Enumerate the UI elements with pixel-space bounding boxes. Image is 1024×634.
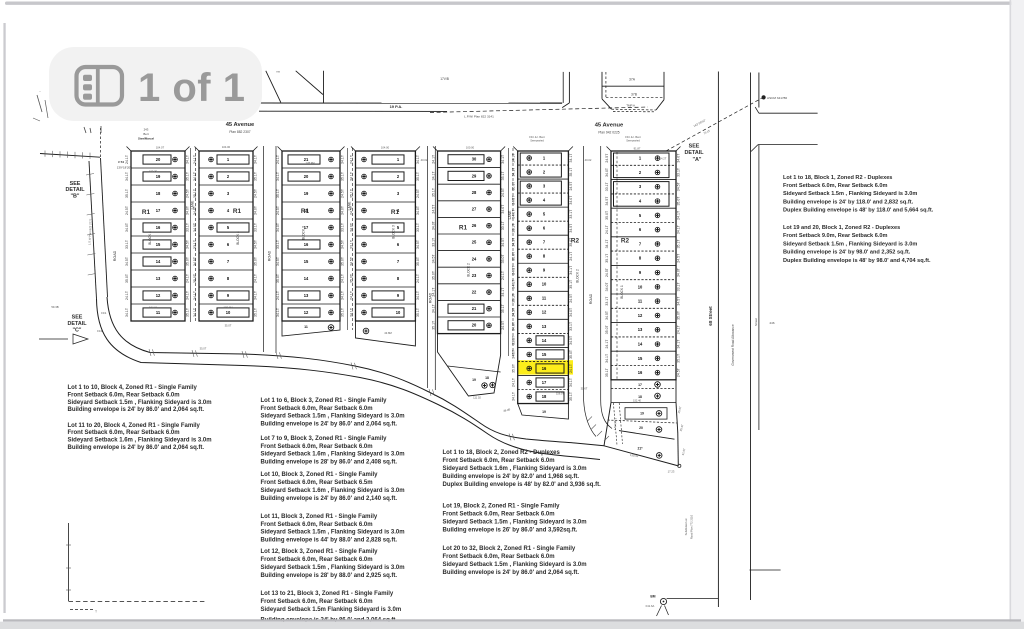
svg-text:Sideyard Setback 1.6m , Flanki: Sideyard Setback 1.6m , Flanking Sideyar…: [443, 466, 587, 472]
svg-text:11: 11: [156, 310, 161, 315]
svg-text:24.5T: 24.5T: [605, 153, 609, 163]
svg-text:34.1T: 34.1T: [185, 290, 189, 300]
svg-text:Duplex Building envelope is 48: Duplex Building envelope is 48' by 82.0'…: [443, 482, 602, 488]
svg-text:35.0T: 35.0T: [193, 273, 197, 283]
svg-text:24.1T: 24.1T: [512, 153, 516, 163]
svg-text:BLOCK 1: BLOCK 1: [620, 285, 624, 299]
svg-text:24.1T: 24.1T: [431, 154, 435, 164]
svg-text:ASCM 341786: ASCM 341786: [767, 96, 787, 100]
svg-text:35.0T: 35.0T: [431, 270, 435, 280]
svg-text:35.0T: 35.0T: [676, 196, 680, 206]
svg-text:11: 11: [638, 299, 643, 304]
svg-text:15: 15: [542, 352, 547, 357]
svg-text:35.1T: 35.1T: [416, 171, 420, 181]
svg-text:34.1T: 34.1T: [512, 279, 516, 289]
svg-text:24.5T: 24.5T: [676, 253, 680, 263]
svg-text:34.1T: 34.1T: [276, 171, 280, 181]
svg-text:34.0T: 34.0T: [512, 321, 516, 331]
svg-text:20: 20: [639, 426, 643, 430]
svg-text:35.1T: 35.1T: [416, 307, 420, 317]
svg-text:35.1T: 35.1T: [185, 307, 189, 317]
svg-text:34.1T: 34.1T: [676, 339, 680, 349]
svg-text:24.1T: 24.1T: [676, 324, 680, 334]
svg-text:246: 246: [769, 321, 774, 325]
svg-text:37B: 37B: [631, 93, 638, 97]
svg-text:LANE: LANE: [348, 201, 352, 211]
svg-text:34.5T: 34.5T: [569, 335, 573, 345]
svg-text:34.1T: 34.1T: [276, 307, 280, 317]
svg-text:SteelMarcel: SteelMarcel: [138, 137, 154, 141]
svg-text:Building envelope is 24' by 82: Building envelope is 24' by 82.0' and 1,…: [443, 474, 580, 480]
svg-text:# 54: # 54: [118, 160, 124, 164]
svg-text:35.1T: 35.1T: [501, 303, 505, 313]
svg-text:Sideyard Setback 1.5m , Flanki: Sideyard Setback 1.5m , Flanking Sideyar…: [443, 519, 587, 525]
svg-text:104.00: 104.00: [381, 146, 390, 150]
svg-text:BLOCK 2: BLOCK 2: [576, 269, 580, 283]
svg-text:Sideyard Setback 1.5m Flankin: Sideyard Setback 1.5m Flanking Sideyard …: [261, 607, 402, 613]
svg-text:34.0T: 34.0T: [501, 204, 505, 214]
svg-text:35.0T: 35.0T: [225, 324, 232, 328]
svg-text:Front Setback 6.0m, Rear Setba: Front Setback 6.0m, Rear Setback 6.0m: [261, 557, 373, 563]
svg-text:24.5T: 24.5T: [501, 320, 505, 330]
svg-text:34.1T: 34.1T: [349, 307, 353, 317]
svg-text:ROAD: ROAD: [268, 250, 272, 261]
svg-text:16: 16: [638, 370, 643, 375]
svg-text:24.1T: 24.1T: [276, 290, 280, 300]
svg-text:24.5T: 24.5T: [125, 205, 129, 215]
svg-text:24.1T: 24.1T: [193, 290, 197, 300]
svg-text:F43.: F43.: [101, 311, 107, 315]
svg-text:24.5T: 24.5T: [501, 187, 505, 197]
svg-text:24.1T: 24.1T: [605, 224, 609, 234]
svg-text:34.0T: 34.0T: [193, 222, 197, 232]
svg-text:Road Plan 772 2110: Road Plan 772 2110: [690, 514, 694, 539]
svg-text:Sideyard Setback 1.5m , Flanki: Sideyard Setback 1.5m , Flanking Sideyar…: [68, 400, 212, 406]
svg-text:34.5T: 34.5T: [431, 254, 435, 264]
svg-text:Street: Street: [754, 318, 758, 326]
svg-text:34.1T: 34.1T: [125, 171, 129, 181]
svg-text:Building envelope is 24' by 86: Building envelope is 24' by 86.0' and 2,…: [443, 570, 580, 576]
svg-text:24.5T: 24.5T: [253, 188, 257, 198]
svg-text:DETAIL: DETAIL: [684, 150, 704, 156]
svg-text:24.1T: 24.1T: [569, 363, 573, 373]
svg-text:10: 10: [396, 310, 401, 315]
svg-text:LANE: LANE: [508, 210, 512, 220]
svg-text:20: 20: [156, 157, 161, 162]
svg-text:35.1T: 35.1T: [276, 188, 280, 198]
svg-text:1 of 1: 1 of 1: [138, 66, 245, 110]
svg-text:24.5T: 24.5T: [512, 307, 516, 317]
svg-text:24.1T: 24.1T: [676, 210, 680, 220]
svg-text:19: 19: [304, 191, 309, 196]
svg-text:34.1T: 34.1T: [569, 377, 573, 387]
svg-text:34.5T: 34.5T: [676, 181, 680, 191]
svg-text:34.0T: 34.0T: [431, 220, 435, 230]
svg-text:34.1T: 34.1T: [185, 154, 189, 164]
svg-text:14: 14: [542, 338, 547, 343]
svg-text:104.0T: 104.0T: [156, 146, 165, 150]
svg-text:24.1T: 24.1T: [349, 290, 353, 300]
svg-text:91.87: 91.87: [634, 147, 641, 151]
svg-text:Front Setback 6.0m, Rear Setba: Front Setback 6.0m, Rear Setback 6.0m: [261, 444, 373, 450]
svg-text:34.1T: 34.1T: [193, 171, 197, 181]
svg-text:152.40: 152.40: [633, 399, 641, 403]
svg-text:34.1T: 34.1T: [416, 154, 420, 164]
svg-text:Lot 1 to 18, Block 2, Zoned R2: Lot 1 to 18, Block 2, Zoned R2 - Duplexe…: [443, 450, 561, 456]
svg-text:Front Setback 6.0m, Rear Setba: Front Setback 6.0m, Rear Setback 6.0m: [443, 511, 555, 517]
svg-text:19: 19: [472, 378, 476, 382]
svg-text:Plan 942 0225: Plan 942 0225: [598, 131, 619, 135]
svg-text:14: 14: [156, 259, 161, 264]
svg-text:34.5T: 34.5T: [193, 256, 197, 266]
svg-text:"B": "B": [70, 193, 79, 199]
svg-text:34.1T: 34.1T: [416, 290, 420, 300]
svg-text:35.1T: 35.1T: [512, 293, 516, 303]
svg-text:34.1T: 34.1T: [193, 307, 197, 317]
svg-text:35.1T: 35.1T: [340, 307, 344, 317]
svg-text:34.5T: 34.5T: [605, 310, 609, 320]
svg-text:24.5T: 24.5T: [276, 205, 280, 215]
svg-text:34.1T: 34.1T: [431, 171, 435, 181]
svg-text:13: 13: [156, 276, 161, 281]
svg-text:34.0T: 34.0T: [605, 282, 609, 292]
svg-text:34.0T: 34.0T: [605, 167, 609, 177]
svg-text:17: 17: [156, 208, 161, 213]
svg-text:~: ~: [39, 89, 41, 93]
svg-text:34.5T: 34.5T: [676, 296, 680, 306]
svg-text:33.1T: 33.1T: [431, 237, 435, 247]
svg-text:35.1T: 35.1T: [253, 307, 257, 317]
svg-text:35.1T: 35.1T: [185, 171, 189, 181]
svg-text:33.1T: 33.1T: [569, 321, 573, 331]
svg-text:R2: R2: [571, 238, 580, 245]
svg-text:33.1T: 33.1T: [253, 222, 257, 232]
svg-text:35.0T: 35.0T: [340, 256, 344, 266]
svg-text:Duplex Building envelope is 48: Duplex Building envelope is 48' by 98.0'…: [783, 258, 931, 264]
svg-text:34.0T: 34.0T: [253, 205, 257, 215]
svg-text:BLOCK 4: BLOCK 4: [148, 231, 152, 245]
svg-text:23: 23: [472, 273, 477, 278]
svg-text:10: 10: [226, 310, 231, 315]
svg-text:31 6T: 31 6T: [581, 387, 588, 391]
svg-text:34.5T: 34.5T: [569, 223, 573, 233]
svg-text:34.5T: 34.5T: [349, 256, 353, 266]
svg-text:33.1T: 33.1T: [349, 239, 353, 249]
svg-text:35.1T: 35.1T: [569, 279, 573, 289]
svg-text:43.8M: 43.8M: [384, 331, 392, 335]
svg-text:16: 16: [304, 242, 309, 247]
svg-text:34.5T: 34.5T: [340, 239, 344, 249]
svg-text:Front Setback 6.0m, Rear Setba: Front Setback 6.0m, Rear Setback 6.0m: [68, 430, 180, 436]
svg-text:34.1T: 34.1T: [340, 290, 344, 300]
svg-text:10: 10: [542, 282, 547, 287]
svg-text:15: 15: [638, 356, 643, 361]
svg-text:40.02: 40.02: [585, 158, 592, 162]
svg-text:33.1T: 33.1T: [276, 239, 280, 249]
svg-text:35.0T: 35.0T: [416, 256, 420, 266]
svg-text:35.1T: 35.1T: [569, 167, 573, 177]
svg-text:34.0T: 34.0T: [512, 209, 516, 219]
svg-text:13: 13: [304, 293, 309, 298]
svg-text:Building envelope is 24' by 98: Building envelope is 24' by 98.0' and 2,…: [783, 250, 911, 256]
svg-text:17.23: 17.23: [668, 470, 675, 474]
svg-text:L.P.W/ Plan 822 3141: L.P.W/ Plan 822 3141: [464, 115, 494, 119]
svg-text:35.1T: 35.1T: [125, 188, 129, 198]
svg-text:Plan 882 2307: Plan 882 2307: [229, 130, 250, 134]
svg-text:Lot 1 to 18, Block 1, Zoned R2: Lot 1 to 18, Block 1, Zoned R2 - Duplexe…: [783, 175, 892, 181]
svg-text:33.1T: 33.1T: [512, 335, 516, 345]
svg-text:12: 12: [542, 310, 547, 315]
svg-text:34.1T: 34.1T: [569, 153, 573, 163]
svg-text:34.0T: 34.0T: [185, 205, 189, 215]
svg-text:Lot 13 to 21, Block 3, Zoned R: Lot 13 to 21, Block 3, Zoned R1 - Single…: [261, 591, 394, 597]
svg-text:59.3B: 59.3B: [51, 305, 58, 309]
svg-text:"C": "C": [72, 327, 81, 333]
svg-text:35.0T: 35.0T: [185, 256, 189, 266]
svg-text:35.1T: 35.1T: [569, 391, 573, 401]
svg-text:111.02: 111.02: [473, 396, 481, 400]
svg-text:34.1T: 34.1T: [340, 154, 344, 164]
svg-text:35.0T: 35.0T: [125, 273, 129, 283]
svg-text:34.1T: 34.1T: [605, 239, 609, 249]
svg-text:24.1T: 24.1T: [569, 251, 573, 261]
svg-text:18: 18: [542, 394, 547, 399]
svg-text:24.5T: 24.5T: [569, 293, 573, 303]
svg-text:Building envelope is 24' by 86: Building envelope is 24' by 86.0' and 2,…: [68, 445, 205, 451]
svg-text:12: 12: [304, 310, 309, 315]
svg-text:24.1T: 24.1T: [125, 154, 129, 164]
svg-text:24.5T: 24.5T: [676, 367, 680, 377]
svg-text:34.5T: 34.5T: [501, 237, 505, 247]
svg-text:Building envelope is 24' by 86: Building envelope is 24' by 86.0' and 2,…: [261, 422, 398, 428]
svg-text:103.1M: 103.1M: [224, 306, 234, 310]
svg-text:DETAIL: DETAIL: [65, 187, 85, 193]
svg-text:28: 28: [472, 190, 477, 195]
svg-text:24.1T: 24.1T: [605, 339, 609, 349]
svg-text:34.1T: 34.1T: [431, 303, 435, 313]
svg-text:12: 12: [638, 313, 643, 318]
svg-text:34.1T: 34.1T: [605, 353, 609, 363]
svg-text:34.1T: 34.1T: [125, 307, 129, 317]
svg-text:35.0T: 35.0T: [276, 273, 280, 283]
svg-text:34.5T: 34.5T: [512, 349, 516, 359]
svg-text:14.2T: 14.2T: [660, 157, 667, 161]
svg-text:35.1T: 35.1T: [349, 188, 353, 198]
svg-text:24.5T: 24.5T: [512, 195, 516, 205]
svg-text:Subdivision at: Subdivision at: [684, 518, 688, 535]
svg-text:34.5T: 34.5T: [416, 239, 420, 249]
svg-text:Front Setback 6.0m, Rear Setba: Front Setback 6.0m, Rear Setback 6.0m: [68, 392, 180, 398]
svg-text:100.00: 100.00: [466, 146, 475, 150]
svg-text:34.1T: 34.1T: [512, 167, 516, 177]
svg-text:35.1T: 35.1T: [253, 171, 257, 181]
svg-text:Lot 20 to 32, Block 2, Zoned R: Lot 20 to 32, Block 2, Zoned R1 - Single…: [443, 546, 576, 552]
svg-text:19: 19: [640, 412, 644, 416]
svg-text:35.0T: 35.0T: [676, 310, 680, 320]
svg-text:35.1T: 35.1T: [193, 188, 197, 198]
svg-text:24.5T: 24.5T: [340, 188, 344, 198]
svg-text:21: 21: [472, 306, 477, 311]
svg-text:SEE: SEE: [70, 181, 81, 187]
svg-text:33.1T: 33.1T: [340, 222, 344, 232]
svg-text:35.0T: 35.0T: [605, 324, 609, 334]
svg-text:R1: R1: [142, 209, 151, 216]
svg-text:R1: R1: [233, 208, 242, 215]
svg-text:35.1T: 35.1T: [340, 171, 344, 181]
svg-text:11: 11: [304, 325, 308, 329]
svg-text:Sideyard Setback 1.5m , Flanki: Sideyard Setback 1.5m , Flanking Sideyar…: [261, 414, 405, 420]
svg-text:33.1T: 33.1T: [676, 167, 680, 177]
svg-text:33.1T: 33.1T: [676, 282, 680, 292]
svg-text:19: 19: [156, 174, 161, 179]
svg-text:33.1T: 33.1T: [605, 181, 609, 191]
svg-text:ROAD: ROAD: [113, 250, 117, 261]
svg-text:22: 22: [472, 290, 477, 295]
svg-text:34.1T: 34.1T: [253, 290, 257, 300]
svg-text:24.1T: 24.1T: [276, 154, 280, 164]
svg-text:35.1T: 35.1T: [676, 239, 680, 249]
svg-text:Building envelope is 24' by 86: Building envelope is 24' by 86.0' and 2,…: [68, 407, 205, 413]
svg-text:35.0T: 35.0T: [512, 251, 516, 261]
svg-text:BM: BM: [650, 595, 655, 599]
svg-text:156.9T: 156.9T: [556, 392, 564, 396]
svg-text:25: 25: [472, 240, 477, 245]
svg-text:104.00: 104.00: [222, 145, 231, 149]
svg-text:Sideyard Setback 1.5m , Flanki: Sideyard Setback 1.5m , Flanking Sideyar…: [261, 530, 405, 536]
svg-text:Front Setback 6.0m, Rear Setba: Front Setback 6.0m, Rear Setback 6.5m: [261, 480, 373, 486]
svg-text:34.5T: 34.5T: [276, 256, 280, 266]
svg-text:34.1T: 34.1T: [253, 154, 257, 164]
svg-text:24.5T: 24.5T: [185, 188, 189, 198]
svg-text:24.1T: 24.1T: [125, 290, 129, 300]
svg-text:12: 12: [156, 293, 161, 298]
svg-text:24.5T: 24.5T: [569, 181, 573, 191]
svg-text:34.5T: 34.5T: [605, 196, 609, 206]
svg-text:34.0T: 34.0T: [125, 222, 129, 232]
svg-text:Building envelope is 28' by 86: Building envelope is 28' by 86.0' and 2,…: [261, 460, 398, 466]
svg-text:35.1T: 35.1T: [501, 171, 505, 181]
svg-text:Building envelope is 28' by 88: Building envelope is 28' by 88.0' and 2,…: [261, 573, 398, 579]
svg-text:18: 18: [638, 395, 642, 399]
svg-text:35.1T: 35.1T: [605, 367, 609, 377]
svg-text:BLOCK 3: BLOCK 3: [302, 226, 306, 240]
svg-text:Lot 11, Block 3, Zoned R1 - Si: Lot 11, Block 3, Zoned R1 - Single Famil…: [261, 514, 378, 520]
svg-text:33.1T: 33.1T: [416, 222, 420, 232]
svg-text:ROAD: ROAD: [589, 293, 593, 304]
svg-text:Sideyard Setback 1.6m , Flanki: Sideyard Setback 1.6m , Flanking Sideyar…: [68, 438, 212, 444]
svg-text:Front Setback 9.0m, Rear Setba: Front Setback 9.0m, Rear Setback 6.0m: [783, 233, 887, 239]
svg-text:Sideyard Setback 1.6m , Flanki: Sideyard Setback 1.6m , Flanking Sideyar…: [261, 452, 405, 458]
svg-text:BLOCK 2: BLOCK 2: [467, 263, 471, 277]
svg-text:34.1T: 34.1T: [569, 265, 573, 275]
svg-text:Building envelope is 24' by 86: Building envelope is 24' by 86.0' and 2,…: [261, 496, 398, 502]
svg-text:21*: 21*: [637, 447, 643, 451]
svg-text:35.0T: 35.0T: [200, 347, 207, 351]
svg-text:R1: R1: [459, 225, 468, 232]
svg-text:15: 15: [304, 259, 309, 264]
svg-text:139°18'20": 139°18'20": [117, 166, 132, 170]
svg-text:24.1T: 24.1T: [185, 273, 189, 283]
svg-text:Sideyard Setback 1.5m , Flanki: Sideyard Setback 1.5m , Flanking Sideyar…: [783, 241, 917, 247]
svg-text:Government Road Allowance: Government Road Allowance: [731, 324, 735, 366]
svg-text:24.1T: 24.1T: [349, 154, 353, 164]
svg-text:20: 20: [472, 323, 477, 328]
svg-text:SEE: SEE: [689, 144, 700, 150]
svg-text:10: 10: [638, 284, 643, 289]
svg-text:T: T: [95, 610, 97, 614]
svg-text:34.0T: 34.0T: [416, 205, 420, 215]
svg-text:35.1T: 35.1T: [676, 353, 680, 363]
svg-text:Front Setback 6.0m, Rear Setba: Front Setback 6.0m, Rear Setback 6.0m: [261, 522, 373, 528]
svg-text:34.5T: 34.5T: [512, 237, 516, 247]
svg-text:26: 26: [472, 223, 477, 228]
svg-text:Building envelope is 24' by 11: Building envelope is 24' by 118.0' and 2…: [783, 199, 914, 205]
svg-text:F41.6A: F41.6A: [646, 604, 655, 608]
svg-text:24.5T: 24.5T: [416, 188, 420, 198]
svg-text:16: 16: [542, 366, 547, 371]
svg-text:Sideyard Setback 1.6m , Flanki: Sideyard Setback 1.6m , Flanking Sideyar…: [261, 488, 405, 494]
svg-text:Front Setback 6.0m, Rear Setba: Front Setback 6.0m, Rear Setback 6.0m: [443, 458, 555, 464]
svg-text:34.0T: 34.0T: [569, 195, 573, 205]
svg-text:35.0T: 35.0T: [349, 273, 353, 283]
svg-text:R1: R1: [391, 209, 400, 216]
svg-text:40.02: 40.02: [421, 158, 428, 162]
svg-text:35.1T: 35.1T: [431, 320, 435, 330]
svg-text:17: 17: [542, 380, 547, 385]
svg-text:35.0T: 35.0T: [501, 254, 505, 264]
svg-text:35.0T: 35.0T: [253, 256, 257, 266]
svg-text:34.0T: 34.0T: [569, 307, 573, 317]
svg-text:Front Setback 6.0m, Rear Setba: Front Setback 6.0m, Rear Setback 6.0m: [261, 406, 373, 412]
svg-text:35.0T: 35.0T: [569, 349, 573, 359]
svg-text:19 P.A.: 19 P.A.: [390, 104, 403, 109]
svg-text:Lot 19 and 20, Block 1, Zoned: Lot 19 and 20, Block 1, Zoned R2 - Duple…: [783, 225, 900, 231]
svg-text:30: 30: [472, 157, 477, 162]
svg-text:Sereyewied: Sereyewied: [626, 138, 640, 142]
svg-text:Sideyard Setback 1.5m , Flanki: Sideyard Setback 1.5m , Flanking Sideyar…: [783, 191, 917, 197]
svg-text:37A: 37A: [629, 78, 636, 82]
svg-text:R2: R2: [621, 238, 630, 245]
svg-text:34.1T: 34.1T: [512, 391, 516, 401]
svg-text:33.1T: 33.1T: [569, 209, 573, 219]
svg-text:24.1T: 24.1T: [512, 265, 516, 275]
svg-text:35.0T: 35.0T: [512, 363, 516, 373]
svg-text:Lot 12, Block 3, Zoned R1 - Si: Lot 12, Block 3, Zoned R1 - Single Famil…: [261, 549, 379, 555]
svg-text:18: 18: [485, 376, 489, 380]
svg-text:33.1T: 33.1T: [193, 239, 197, 249]
svg-text:Lot 7 to 9, Block 3, Zoned R1: Lot 7 to 9, Block 3, Zoned R1 - Single F…: [261, 436, 388, 442]
svg-text:Lot 1 to 6, Block 3, Zoned R1: Lot 1 to 6, Block 3, Zoned R1 - Single F…: [261, 398, 388, 404]
svg-text:"A": "A": [692, 157, 701, 163]
svg-text:19: 19: [542, 410, 546, 414]
svg-text:34.0T: 34.0T: [349, 222, 353, 232]
svg-text:Lot 1 to 10, Block 4, Zoned R1: Lot 1 to 10, Block 4, Zoned R1 - Single …: [68, 385, 198, 391]
svg-text:17: 17: [638, 383, 642, 387]
svg-text:BLOCK 3: BLOCK 3: [392, 225, 396, 239]
svg-text:128.9M: 128.9M: [306, 161, 316, 165]
svg-text:Lot 19, Block 2, Zoned R1 - Si: Lot 19, Block 2, Zoned R1 - Single Famil…: [443, 504, 561, 510]
svg-text:14: 14: [304, 276, 309, 281]
svg-text:133.79: 133.79: [149, 170, 158, 174]
svg-text:33.1T: 33.1T: [605, 296, 609, 306]
svg-text:DETAIL: DETAIL: [67, 321, 87, 327]
svg-text:34.0T: 34.0T: [276, 222, 280, 232]
svg-text:15: 15: [156, 242, 161, 247]
svg-text:Sereyewied: Sereyewied: [530, 138, 544, 142]
svg-text:BLOCK 4: BLOCK 4: [236, 231, 240, 245]
svg-text:24.1T: 24.1T: [512, 377, 516, 387]
svg-text:Sideyard Setback 1.5m , Flanki: Sideyard Setback 1.5m , Flanking Sideyar…: [443, 562, 587, 568]
